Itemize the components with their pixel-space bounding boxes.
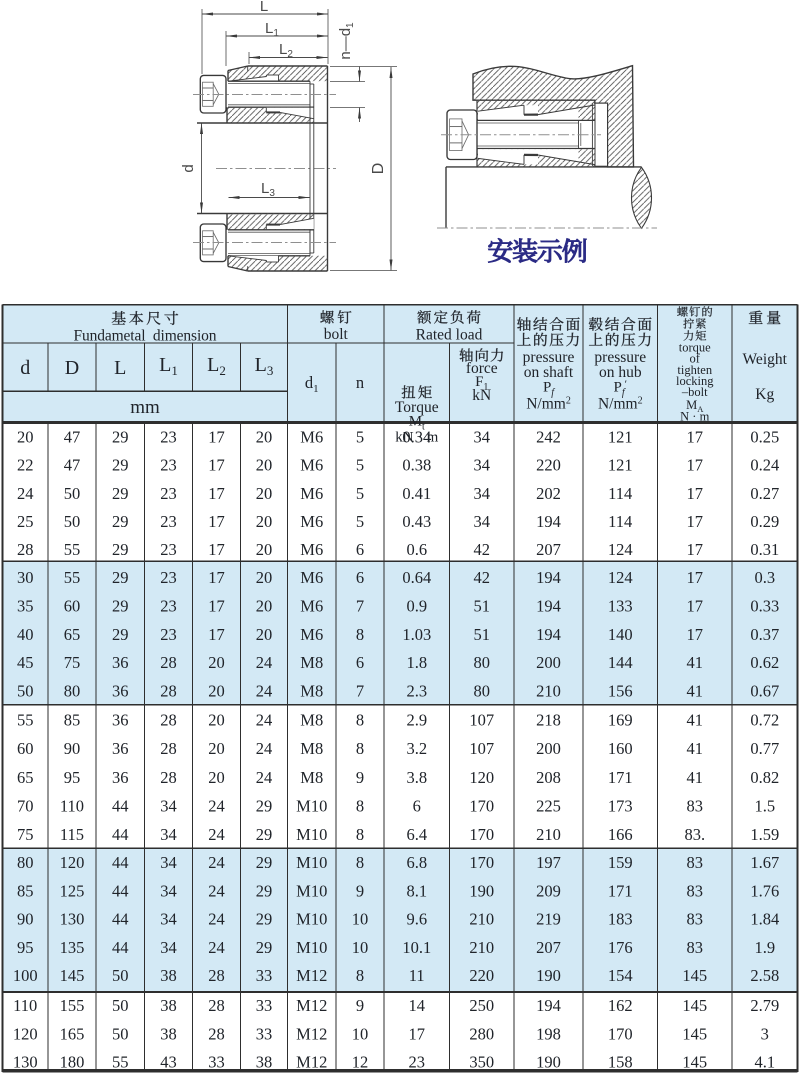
svg-text:65: 65 xyxy=(17,768,34,787)
svg-text:28: 28 xyxy=(160,682,177,701)
svg-text:0.62: 0.62 xyxy=(750,653,779,672)
svg-text:130: 130 xyxy=(13,1053,38,1072)
svg-text:194: 194 xyxy=(536,996,561,1015)
svg-text:0.37: 0.37 xyxy=(750,625,779,644)
svg-text:17: 17 xyxy=(687,596,704,615)
svg-text:120: 120 xyxy=(469,768,494,787)
svg-text:95: 95 xyxy=(64,768,81,787)
svg-text:5: 5 xyxy=(356,512,364,531)
svg-text:83: 83 xyxy=(687,796,704,815)
svg-text:8: 8 xyxy=(356,711,364,730)
svg-text:194: 194 xyxy=(536,625,561,644)
svg-text:140: 140 xyxy=(608,625,633,644)
svg-text:34: 34 xyxy=(160,825,177,844)
svg-text:210: 210 xyxy=(536,825,561,844)
svg-text:9: 9 xyxy=(356,881,364,900)
svg-text:50: 50 xyxy=(64,512,81,531)
svg-text:170: 170 xyxy=(469,825,494,844)
svg-text:0.72: 0.72 xyxy=(750,711,779,730)
svg-text:210: 210 xyxy=(469,938,494,957)
svg-text:176: 176 xyxy=(608,938,633,957)
svg-text:29: 29 xyxy=(112,568,129,587)
svg-text:42: 42 xyxy=(474,568,491,587)
svg-text:33: 33 xyxy=(256,996,273,1015)
svg-text:10: 10 xyxy=(352,1024,369,1043)
svg-text:85: 85 xyxy=(64,711,81,730)
svg-text:0.29: 0.29 xyxy=(750,512,779,531)
svg-text:20: 20 xyxy=(208,682,225,701)
svg-text:5: 5 xyxy=(356,428,364,447)
svg-text:8: 8 xyxy=(356,853,364,872)
svg-text:28: 28 xyxy=(160,768,177,787)
svg-text:80: 80 xyxy=(474,682,491,701)
svg-text:100: 100 xyxy=(13,966,38,985)
svg-text:180: 180 xyxy=(60,1053,85,1072)
svg-text:M6: M6 xyxy=(300,512,323,531)
svg-text:mm: mm xyxy=(130,397,160,418)
svg-text:41: 41 xyxy=(687,711,704,730)
svg-text:114: 114 xyxy=(608,484,632,503)
svg-text:Kg: Kg xyxy=(755,386,774,403)
svg-text:120: 120 xyxy=(60,853,85,872)
svg-text:110: 110 xyxy=(60,796,84,815)
svg-text:135: 135 xyxy=(60,938,85,957)
svg-text:24: 24 xyxy=(208,796,225,815)
svg-text:Weight: Weight xyxy=(743,351,788,368)
svg-text:10: 10 xyxy=(352,938,369,957)
svg-text:162: 162 xyxy=(608,996,633,1015)
svg-text:190: 190 xyxy=(469,881,494,900)
svg-text:D: D xyxy=(65,357,79,379)
svg-text:29: 29 xyxy=(112,484,129,503)
svg-text:171: 171 xyxy=(608,881,633,900)
svg-text:d: d xyxy=(20,357,30,379)
svg-text:8: 8 xyxy=(356,739,364,758)
svg-text:M6: M6 xyxy=(300,568,323,587)
svg-text:75: 75 xyxy=(64,653,81,672)
svg-text:210: 210 xyxy=(536,682,561,701)
svg-text:36: 36 xyxy=(112,711,129,730)
svg-text:1.76: 1.76 xyxy=(750,881,779,900)
svg-text:194: 194 xyxy=(536,568,561,587)
svg-text:L3: L3 xyxy=(261,180,275,199)
svg-text:51: 51 xyxy=(474,596,491,615)
svg-text:0.6: 0.6 xyxy=(406,540,427,559)
svg-text:44: 44 xyxy=(112,853,129,872)
svg-text:28: 28 xyxy=(208,966,225,985)
svg-text:145: 145 xyxy=(682,996,707,1015)
svg-text:34: 34 xyxy=(474,512,491,531)
svg-text:28: 28 xyxy=(160,653,177,672)
svg-text:1.9: 1.9 xyxy=(754,938,775,957)
svg-text:0.82: 0.82 xyxy=(750,768,779,787)
svg-text:0.38: 0.38 xyxy=(402,456,431,475)
svg-text:23: 23 xyxy=(160,540,177,559)
svg-text:80: 80 xyxy=(474,653,491,672)
svg-text:41: 41 xyxy=(687,739,704,758)
svg-text:20: 20 xyxy=(256,625,273,644)
svg-text:24: 24 xyxy=(256,739,273,758)
svg-text:0.33: 0.33 xyxy=(750,596,779,615)
svg-text:198: 198 xyxy=(536,1024,561,1043)
svg-text:75: 75 xyxy=(17,825,34,844)
svg-text:207: 207 xyxy=(536,540,561,559)
svg-text:6.8: 6.8 xyxy=(406,853,427,872)
svg-text:44: 44 xyxy=(112,796,129,815)
svg-text:n—d1: n—d1 xyxy=(337,22,356,60)
svg-text:145: 145 xyxy=(60,966,85,985)
svg-text:20: 20 xyxy=(256,540,273,559)
svg-text:159: 159 xyxy=(608,853,633,872)
svg-text:29: 29 xyxy=(112,456,129,475)
svg-text:–bolt: –bolt xyxy=(681,385,708,399)
svg-text:0.64: 0.64 xyxy=(402,568,431,587)
svg-text:23: 23 xyxy=(409,1053,426,1072)
svg-text:47: 47 xyxy=(64,456,81,475)
svg-text:on hub: on hub xyxy=(599,364,642,381)
svg-text:28: 28 xyxy=(160,711,177,730)
svg-text:20: 20 xyxy=(208,711,225,730)
svg-text:55: 55 xyxy=(112,1053,129,1072)
svg-text:194: 194 xyxy=(536,596,561,615)
svg-text:8.1: 8.1 xyxy=(406,881,427,900)
svg-text:218: 218 xyxy=(536,711,561,730)
svg-text:41: 41 xyxy=(687,682,704,701)
svg-text:33: 33 xyxy=(256,966,273,985)
svg-text:M8: M8 xyxy=(300,653,323,672)
svg-text:145: 145 xyxy=(682,966,707,985)
svg-text:34: 34 xyxy=(160,938,177,957)
svg-text:114: 114 xyxy=(608,512,632,531)
svg-text:44: 44 xyxy=(112,910,129,929)
svg-text:60: 60 xyxy=(64,596,81,615)
svg-text:70: 70 xyxy=(17,796,34,815)
svg-text:6: 6 xyxy=(356,568,364,587)
svg-text:125: 125 xyxy=(60,881,85,900)
svg-text:29: 29 xyxy=(112,625,129,644)
svg-text:133: 133 xyxy=(608,596,633,615)
svg-text:M8: M8 xyxy=(300,682,323,701)
svg-text:29: 29 xyxy=(256,796,273,815)
svg-text:M12: M12 xyxy=(296,1024,327,1043)
svg-text:41: 41 xyxy=(687,653,704,672)
svg-text:6.4: 6.4 xyxy=(406,825,427,844)
svg-text:42: 42 xyxy=(474,540,491,559)
svg-text:1.5: 1.5 xyxy=(754,796,775,815)
svg-text:158: 158 xyxy=(608,1053,633,1072)
svg-text:M10: M10 xyxy=(296,853,327,872)
svg-text:8: 8 xyxy=(356,825,364,844)
svg-text:202: 202 xyxy=(536,484,561,503)
svg-text:17: 17 xyxy=(687,540,704,559)
svg-text:83: 83 xyxy=(687,938,704,957)
svg-text:1.03: 1.03 xyxy=(402,625,431,644)
svg-text:L2: L2 xyxy=(279,41,293,60)
svg-text:5: 5 xyxy=(356,484,364,503)
svg-text:44: 44 xyxy=(112,825,129,844)
svg-text:34: 34 xyxy=(160,910,177,929)
svg-text:124: 124 xyxy=(608,568,633,587)
svg-text:144: 144 xyxy=(608,653,633,672)
svg-text:M6: M6 xyxy=(300,625,323,644)
svg-text:17: 17 xyxy=(687,428,704,447)
svg-text:160: 160 xyxy=(608,739,633,758)
svg-text:55: 55 xyxy=(64,540,81,559)
svg-text:107: 107 xyxy=(469,711,494,730)
svg-text:M6: M6 xyxy=(300,484,323,503)
svg-text:45: 45 xyxy=(17,653,34,672)
svg-text:194: 194 xyxy=(536,512,561,531)
svg-text:8: 8 xyxy=(356,966,364,985)
svg-text:24: 24 xyxy=(208,938,225,957)
svg-text:M10: M10 xyxy=(296,796,327,815)
svg-text:8: 8 xyxy=(356,625,364,644)
svg-text:121: 121 xyxy=(608,456,633,475)
svg-text:d: d xyxy=(180,164,197,172)
svg-text:145: 145 xyxy=(682,1024,707,1043)
svg-text:29: 29 xyxy=(256,938,273,957)
svg-text:23: 23 xyxy=(160,568,177,587)
svg-text:23: 23 xyxy=(160,428,177,447)
svg-text:29: 29 xyxy=(112,512,129,531)
svg-text:190: 190 xyxy=(536,966,561,985)
svg-text:29: 29 xyxy=(112,596,129,615)
svg-text:17: 17 xyxy=(687,625,704,644)
svg-text:60: 60 xyxy=(17,739,34,758)
svg-text:2.9: 2.9 xyxy=(406,711,427,730)
svg-text:on shaft: on shaft xyxy=(524,364,574,381)
svg-text:85: 85 xyxy=(17,881,34,900)
svg-text:9.6: 9.6 xyxy=(406,910,427,929)
svg-text:3.2: 3.2 xyxy=(406,739,427,758)
svg-text:28: 28 xyxy=(208,1024,225,1043)
svg-text:24: 24 xyxy=(208,853,225,872)
svg-text:197: 197 xyxy=(536,853,561,872)
svg-text:0.43: 0.43 xyxy=(402,512,431,531)
svg-text:20: 20 xyxy=(256,568,273,587)
svg-text:170: 170 xyxy=(469,853,494,872)
svg-text:190: 190 xyxy=(536,1053,561,1072)
svg-text:55: 55 xyxy=(17,711,34,730)
svg-text:25: 25 xyxy=(17,512,34,531)
svg-text:M8: M8 xyxy=(300,739,323,758)
svg-text:200: 200 xyxy=(536,739,561,758)
svg-text:44: 44 xyxy=(112,881,129,900)
svg-text:0.67: 0.67 xyxy=(750,682,779,701)
svg-text:17: 17 xyxy=(687,512,704,531)
svg-text:29: 29 xyxy=(256,881,273,900)
svg-text:50: 50 xyxy=(112,966,129,985)
svg-text:38: 38 xyxy=(256,1053,273,1072)
svg-text:80: 80 xyxy=(17,853,34,872)
svg-text:350: 350 xyxy=(469,1053,494,1072)
svg-text:120: 120 xyxy=(13,1024,38,1043)
svg-text:0.31: 0.31 xyxy=(750,540,779,559)
svg-text:D: D xyxy=(370,163,387,175)
svg-text:6: 6 xyxy=(413,796,421,815)
svg-text:34: 34 xyxy=(474,456,491,475)
svg-text:17: 17 xyxy=(208,568,225,587)
svg-text:34: 34 xyxy=(160,853,177,872)
svg-text:51: 51 xyxy=(474,625,491,644)
svg-text:24: 24 xyxy=(17,484,34,503)
svg-text:24: 24 xyxy=(256,768,273,787)
svg-text:33: 33 xyxy=(256,1024,273,1043)
svg-text:209: 209 xyxy=(536,881,561,900)
svg-text:24: 24 xyxy=(256,653,273,672)
svg-text:1.59: 1.59 xyxy=(750,825,779,844)
svg-text:17: 17 xyxy=(208,512,225,531)
svg-text:115: 115 xyxy=(60,825,84,844)
svg-text:65: 65 xyxy=(64,625,81,644)
svg-text:29: 29 xyxy=(112,428,129,447)
svg-text:23: 23 xyxy=(160,596,177,615)
svg-text:3: 3 xyxy=(761,1024,769,1043)
svg-text:17: 17 xyxy=(687,484,704,503)
svg-text:36: 36 xyxy=(112,653,129,672)
svg-text:208: 208 xyxy=(536,768,561,787)
svg-text:34: 34 xyxy=(474,428,491,447)
svg-text:6: 6 xyxy=(356,653,364,672)
svg-text:220: 220 xyxy=(536,456,561,475)
svg-text:165: 165 xyxy=(60,1024,85,1043)
svg-text:M10: M10 xyxy=(296,881,327,900)
svg-text:29: 29 xyxy=(256,853,273,872)
svg-text:4.1: 4.1 xyxy=(754,1053,775,1072)
svg-text:20: 20 xyxy=(256,484,273,503)
svg-text:145: 145 xyxy=(682,1053,707,1072)
svg-text:30: 30 xyxy=(17,568,34,587)
svg-text:110: 110 xyxy=(13,996,37,1015)
svg-text:29: 29 xyxy=(256,910,273,929)
svg-text:17: 17 xyxy=(208,456,225,475)
svg-text:34: 34 xyxy=(160,881,177,900)
svg-text:1.8: 1.8 xyxy=(406,653,427,672)
svg-text:23: 23 xyxy=(160,484,177,503)
svg-text:50: 50 xyxy=(112,1024,129,1043)
svg-text:50: 50 xyxy=(17,682,34,701)
svg-text:9: 9 xyxy=(356,768,364,787)
svg-text:N/mm2: N/mm2 xyxy=(526,396,571,413)
svg-text:24: 24 xyxy=(256,711,273,730)
svg-text:9: 9 xyxy=(356,996,364,1015)
svg-text:M6: M6 xyxy=(300,596,323,615)
svg-text:29: 29 xyxy=(256,825,273,844)
svg-text:20: 20 xyxy=(256,512,273,531)
svg-text:170: 170 xyxy=(469,796,494,815)
svg-text:22: 22 xyxy=(17,456,34,475)
svg-text:38: 38 xyxy=(160,966,177,985)
svg-text:2.3: 2.3 xyxy=(406,682,427,701)
svg-text:29: 29 xyxy=(112,540,129,559)
svg-text:83: 83 xyxy=(687,910,704,929)
svg-text:5: 5 xyxy=(356,456,364,475)
svg-text:17: 17 xyxy=(687,568,704,587)
svg-text:83: 83 xyxy=(687,881,704,900)
svg-text:90: 90 xyxy=(64,739,81,758)
svg-text:20: 20 xyxy=(256,456,273,475)
svg-text:171: 171 xyxy=(608,768,633,787)
svg-text:M12: M12 xyxy=(296,996,327,1015)
svg-text:24: 24 xyxy=(208,825,225,844)
svg-text:20: 20 xyxy=(208,768,225,787)
svg-text:2.79: 2.79 xyxy=(750,996,779,1015)
svg-text:219: 219 xyxy=(536,910,561,929)
svg-text:156: 156 xyxy=(608,682,633,701)
svg-text:34: 34 xyxy=(160,796,177,815)
svg-text:L: L xyxy=(114,357,126,379)
svg-text:M6: M6 xyxy=(300,428,323,447)
svg-text:n: n xyxy=(356,373,364,392)
svg-text:Rated load: Rated load xyxy=(416,327,483,344)
svg-text:34: 34 xyxy=(474,484,491,503)
svg-text:28: 28 xyxy=(17,540,34,559)
svg-text:38: 38 xyxy=(160,996,177,1015)
svg-text:207: 207 xyxy=(536,938,561,957)
svg-text:17: 17 xyxy=(208,540,225,559)
svg-text:1.67: 1.67 xyxy=(750,853,779,872)
svg-text:169: 169 xyxy=(608,711,633,730)
svg-text:225: 225 xyxy=(536,796,561,815)
svg-text:7: 7 xyxy=(356,596,364,615)
svg-text:43: 43 xyxy=(160,1053,177,1072)
svg-text:24: 24 xyxy=(256,682,273,701)
svg-text:17: 17 xyxy=(687,456,704,475)
svg-text:90: 90 xyxy=(17,910,34,929)
svg-text:36: 36 xyxy=(112,768,129,787)
svg-text:0.27: 0.27 xyxy=(750,484,779,503)
svg-text:10: 10 xyxy=(352,910,369,929)
svg-text:7: 7 xyxy=(356,682,364,701)
svg-text:47: 47 xyxy=(64,428,81,447)
svg-text:0.25: 0.25 xyxy=(750,428,779,447)
svg-text:0.77: 0.77 xyxy=(750,739,779,758)
svg-text:0.41: 0.41 xyxy=(402,484,431,503)
svg-text:80: 80 xyxy=(64,682,81,701)
svg-text:20: 20 xyxy=(256,596,273,615)
svg-text:173: 173 xyxy=(608,796,633,815)
svg-text:33: 33 xyxy=(208,1053,225,1072)
svg-text:83.: 83. xyxy=(684,825,705,844)
svg-text:1.84: 1.84 xyxy=(750,910,779,929)
svg-text:kN·m: kN·m xyxy=(395,430,438,446)
svg-text:23: 23 xyxy=(160,625,177,644)
svg-text:Fundametal dimension: Fundametal dimension xyxy=(74,328,217,345)
svg-text:130: 130 xyxy=(60,910,85,929)
svg-text:28: 28 xyxy=(208,996,225,1015)
svg-text:83: 83 xyxy=(687,853,704,872)
svg-text:24: 24 xyxy=(208,881,225,900)
svg-text:155: 155 xyxy=(60,996,85,1015)
svg-text:40: 40 xyxy=(17,625,34,644)
svg-text:L1: L1 xyxy=(265,20,279,39)
svg-text:220: 220 xyxy=(469,966,494,985)
svg-text:10.1: 10.1 xyxy=(402,938,431,957)
svg-text:50: 50 xyxy=(64,484,81,503)
svg-text:44: 44 xyxy=(112,938,129,957)
svg-text:38: 38 xyxy=(160,1024,177,1043)
svg-text:M10: M10 xyxy=(296,825,327,844)
svg-text:M6: M6 xyxy=(300,456,323,475)
svg-text:210: 210 xyxy=(469,910,494,929)
svg-text:121: 121 xyxy=(608,428,633,447)
svg-text:0.24: 0.24 xyxy=(750,456,779,475)
svg-text:36: 36 xyxy=(112,682,129,701)
svg-text:20: 20 xyxy=(17,428,34,447)
svg-text:23: 23 xyxy=(160,512,177,531)
svg-text:bolt: bolt xyxy=(324,326,349,343)
svg-text:50: 50 xyxy=(112,996,129,1015)
